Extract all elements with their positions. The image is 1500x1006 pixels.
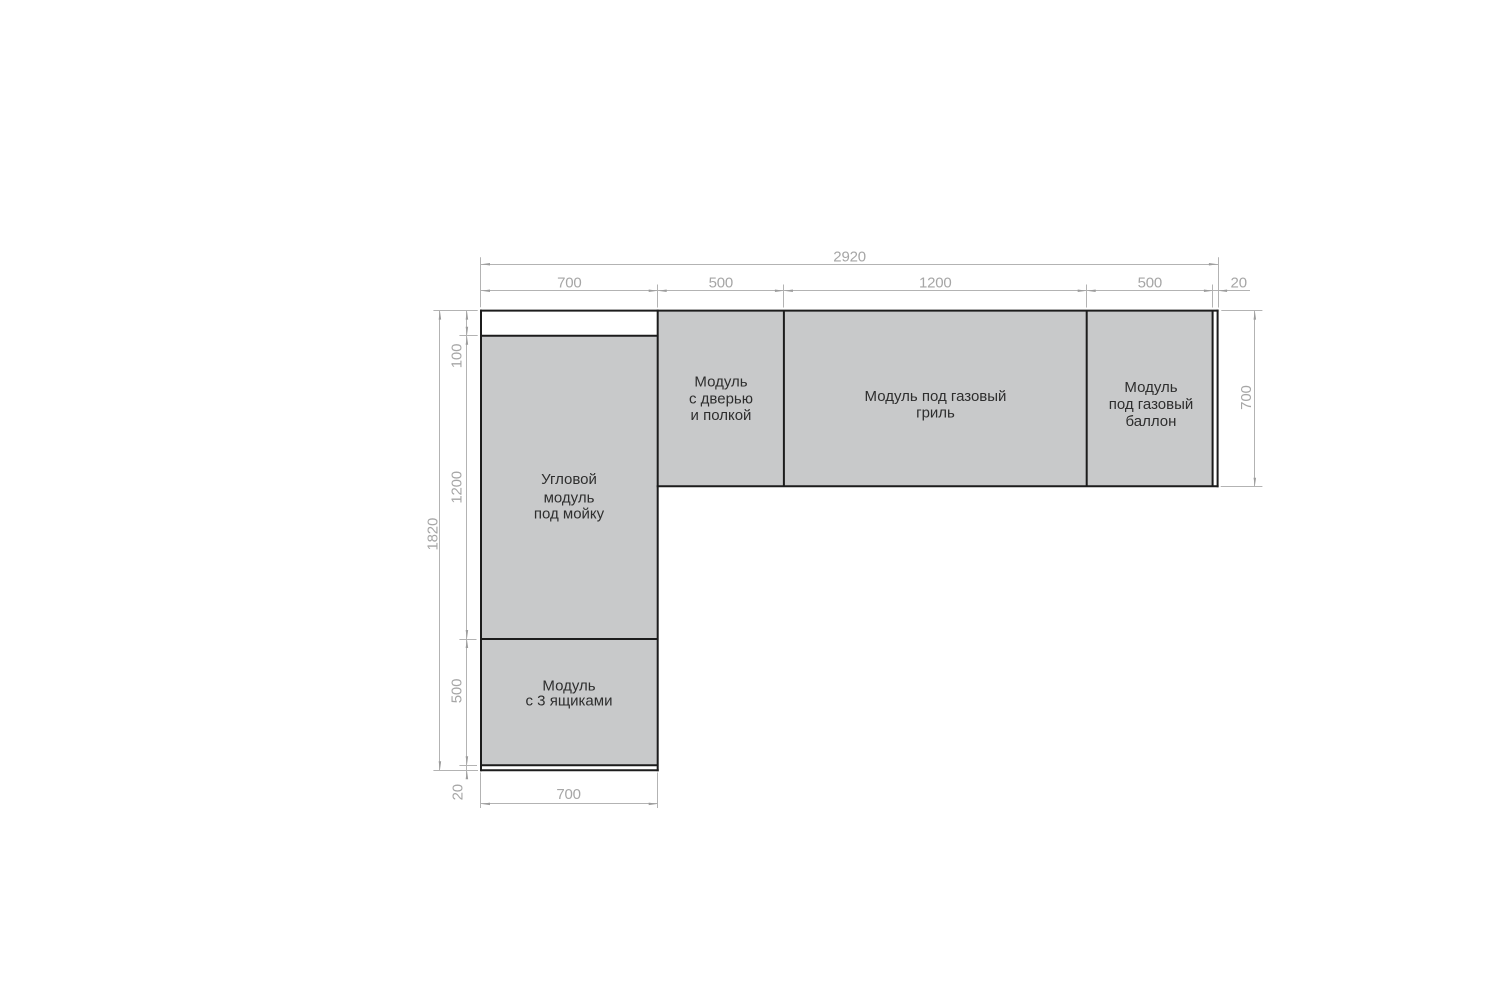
svg-text:гриль: гриль <box>916 405 955 422</box>
svg-text:баллон: баллон <box>1126 413 1177 430</box>
svg-text:20: 20 <box>449 784 466 800</box>
svg-text:Модуль: Модуль <box>694 373 747 390</box>
svg-text:500: 500 <box>709 275 733 292</box>
svg-text:700: 700 <box>556 786 580 803</box>
svg-text:Модуль: Модуль <box>1124 379 1177 396</box>
svg-text:1820: 1820 <box>425 518 442 551</box>
svg-text:под газовый: под газовый <box>1109 396 1194 413</box>
svg-text:500: 500 <box>1138 275 1162 292</box>
svg-text:и полкой: и полкой <box>691 407 752 424</box>
svg-text:100: 100 <box>449 344 466 368</box>
svg-text:700: 700 <box>557 275 581 292</box>
svg-text:700: 700 <box>1238 385 1255 409</box>
svg-text:1200: 1200 <box>449 471 466 504</box>
svg-text:под мойку: под мойку <box>534 505 605 522</box>
svg-text:Угловой: Угловой <box>541 471 597 488</box>
svg-text:20: 20 <box>1231 274 1247 291</box>
svg-text:500: 500 <box>449 679 466 703</box>
svg-text:Модуль под газовый: Модуль под газовый <box>865 388 1007 405</box>
svg-text:1200: 1200 <box>919 275 952 292</box>
svg-text:модуль: модуль <box>544 489 595 506</box>
svg-text:с 3 ящиками: с 3 ящиками <box>526 692 613 709</box>
svg-text:2920: 2920 <box>833 248 866 265</box>
svg-text:с дверью: с дверью <box>689 391 753 408</box>
